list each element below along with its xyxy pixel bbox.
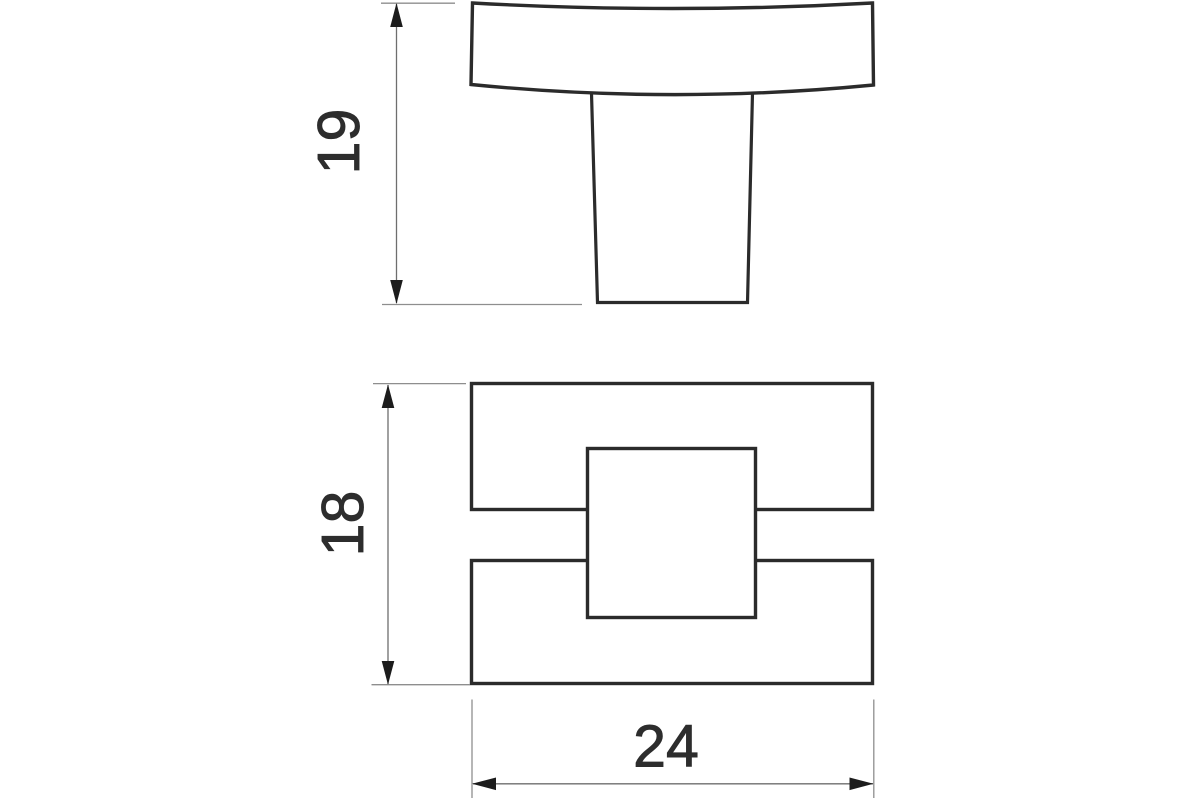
svg-text:19: 19 — [306, 109, 372, 175]
svg-text:18: 18 — [310, 491, 376, 557]
svg-text:24: 24 — [633, 714, 699, 780]
